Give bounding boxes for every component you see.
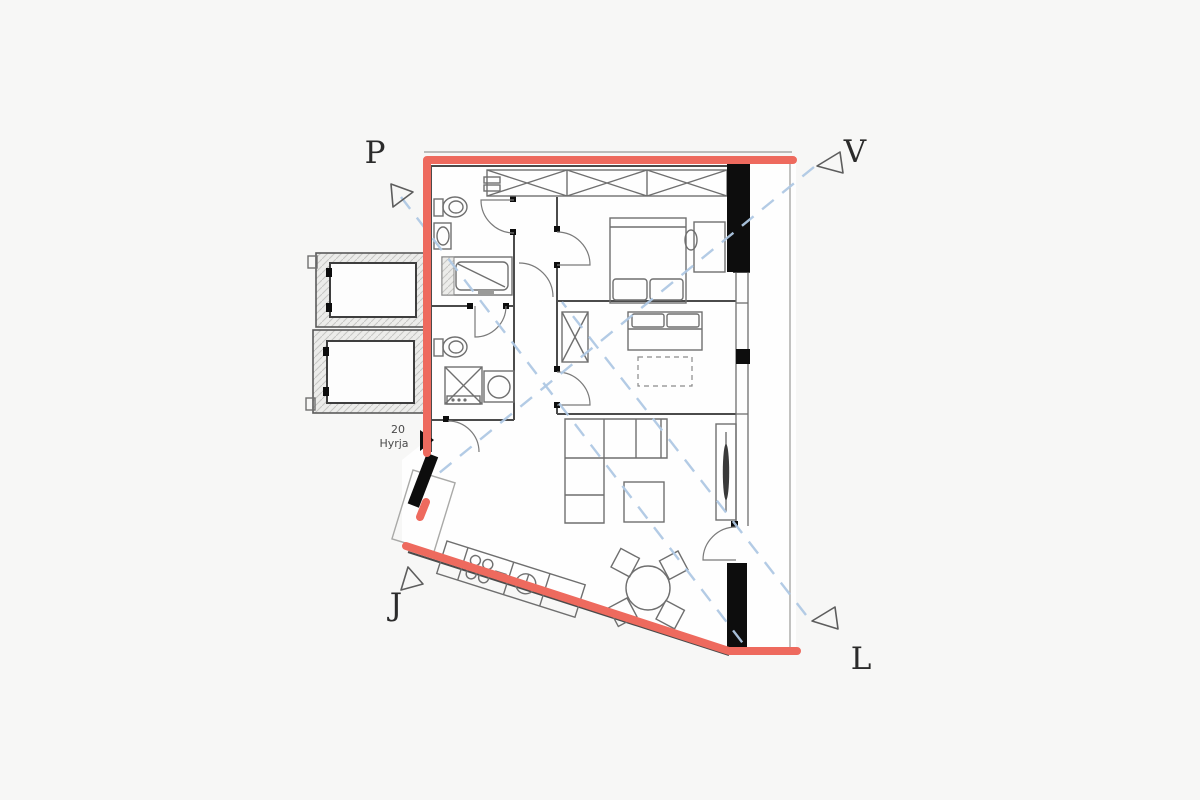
label-east: L	[851, 641, 872, 677]
arrow-j-icon	[401, 567, 423, 590]
arrow-l-icon	[812, 607, 838, 629]
entrance-label: 20 Hyrja	[379, 423, 408, 450]
label-north: V	[843, 134, 867, 170]
elevator-shafts	[306, 253, 428, 413]
arrow-v-icon	[817, 152, 843, 173]
label-west: P	[365, 135, 386, 171]
floor-plan-canvas: P V J L 20 Hyrja	[0, 0, 1200, 800]
arrow-p-icon	[391, 184, 413, 207]
entrance-name: Hyrja	[379, 437, 408, 450]
entrance-number: 20	[391, 423, 405, 436]
floor-plan-svg: P V J L 20 Hyrja	[0, 0, 1200, 800]
label-south: J	[387, 587, 402, 623]
